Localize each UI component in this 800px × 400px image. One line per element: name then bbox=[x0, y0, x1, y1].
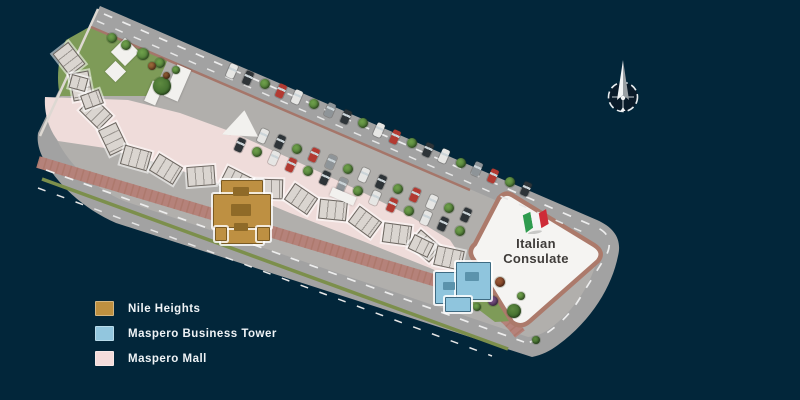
legend: Nile Heights Maspero Business Tower Masp… bbox=[95, 301, 277, 366]
north-compass-icon bbox=[600, 58, 646, 118]
nile-heights-building[interactable] bbox=[213, 177, 269, 247]
building-block bbox=[456, 262, 491, 300]
consulate-name-line1: Italian bbox=[488, 236, 584, 251]
building-core bbox=[231, 204, 251, 216]
legend-item-nile-heights[interactable]: Nile Heights bbox=[95, 301, 277, 316]
building-core bbox=[443, 282, 455, 290]
legend-label: Maspero Mall bbox=[128, 353, 207, 365]
legend-swatch-blue bbox=[95, 326, 114, 341]
consulate-name-line2: Consulate bbox=[488, 251, 584, 266]
building-core bbox=[233, 187, 249, 196]
legend-item-maspero-mall[interactable]: Maspero Mall bbox=[95, 351, 277, 366]
legend-item-maspero-business-tower[interactable]: Maspero Business Tower bbox=[95, 326, 277, 341]
legend-label: Maspero Business Tower bbox=[128, 328, 277, 340]
site-plan-scene: Italian Consulate Nile Heights Maspero B… bbox=[0, 0, 800, 400]
legend-label: Nile Heights bbox=[128, 303, 200, 315]
legend-swatch-gold bbox=[95, 301, 114, 316]
consulate-label: Italian Consulate bbox=[488, 208, 584, 266]
maspero-business-tower-building[interactable] bbox=[433, 260, 493, 314]
italy-flag-icon bbox=[519, 208, 553, 234]
legend-swatch-pink bbox=[95, 351, 114, 366]
building-block bbox=[215, 227, 227, 241]
building-block bbox=[257, 227, 270, 241]
building-block bbox=[445, 297, 471, 312]
building-core bbox=[234, 223, 248, 231]
building-core bbox=[465, 272, 479, 281]
